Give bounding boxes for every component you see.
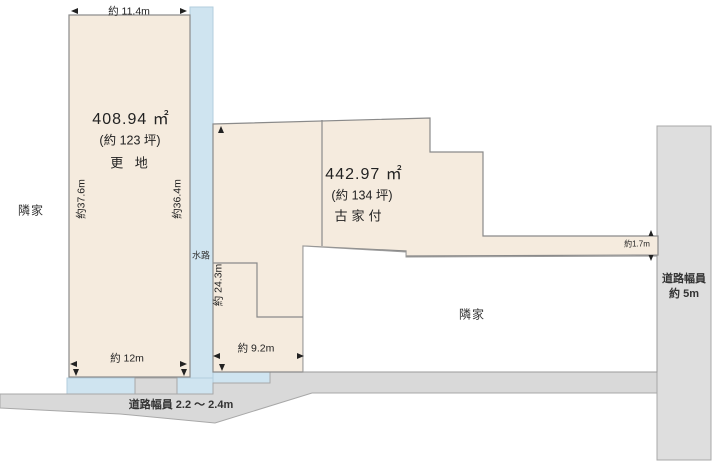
neighbor-bottom-right-label: 隣家	[459, 306, 485, 323]
road-right-label-line2: 約 5m	[669, 285, 699, 301]
arrow-left-icon	[71, 8, 78, 14]
road-bottom-label: 道路幅員 2.2 ～ 2.4m	[129, 396, 234, 412]
arrow-up-icon	[649, 230, 654, 236]
lot-right-status: 古家付	[334, 206, 385, 225]
dim-bottom-right-lot: 約 9.2m	[238, 341, 275, 356]
neighbor-left-label: 隣家	[18, 202, 44, 219]
lot-left-area: 408.94 ㎡	[92, 105, 169, 129]
waterway-strip	[190, 7, 213, 392]
waterway-bar-right	[213, 372, 270, 383]
lot-left-tsubo: (約 123 坪)	[99, 130, 160, 149]
lot-right-area: 442.97 ㎡	[325, 160, 402, 184]
dim-left-right-lot: 約 24.3m	[211, 264, 226, 307]
site-plan-diagram: 約 11.4m 408.94 ㎡ (約 123 坪) 更 地 約37.6m 約3…	[0, 0, 725, 472]
dim-top-left-lot: 約 11.4m	[108, 4, 150, 19]
dim-left-left-lot: 約37.6m	[74, 179, 89, 219]
arrow-right-icon	[180, 8, 187, 14]
site-plan-canvas	[0, 0, 725, 472]
dim-strip-right-lot: 約1.7m	[624, 239, 650, 250]
lot-right-tsubo: (約 134 坪)	[331, 185, 392, 204]
bridge-section	[135, 378, 177, 395]
dim-right-left-lot: 約36.4m	[170, 179, 185, 219]
lot-left-status: 更 地	[110, 153, 152, 172]
dim-bottom-left-lot: 約 12m	[110, 351, 144, 366]
waterway-label: 水路	[192, 249, 210, 262]
road-right-label-line1: 道路幅員	[662, 270, 706, 286]
